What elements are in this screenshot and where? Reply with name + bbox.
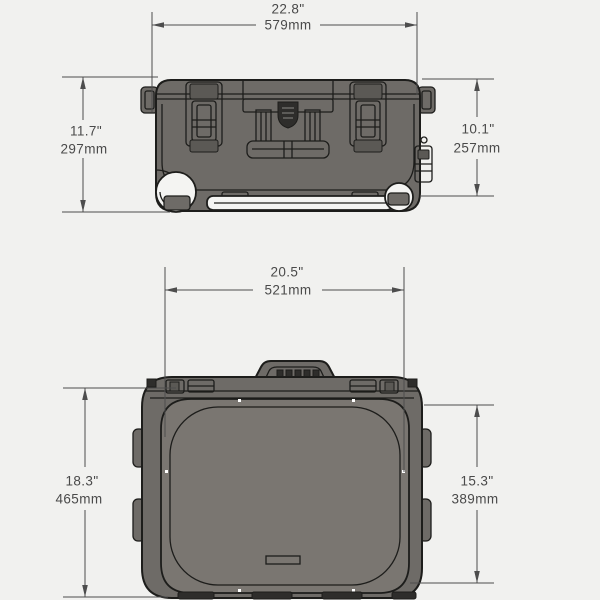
top-view-drawing bbox=[133, 361, 431, 599]
mold-mark bbox=[238, 589, 241, 592]
mold-mark bbox=[165, 470, 168, 473]
top-depth-left-mm: 465mm bbox=[55, 492, 102, 506]
diagram-drawing bbox=[0, 0, 600, 600]
front-width-inches: 22.8" bbox=[271, 2, 304, 16]
front-view-drawing bbox=[141, 80, 435, 212]
wheel-right bbox=[385, 183, 413, 211]
front-height-right-mm: 257mm bbox=[453, 141, 500, 155]
top-width-mm: 521mm bbox=[264, 283, 311, 297]
top-depth-right-inches: 15.3" bbox=[460, 474, 493, 488]
mold-mark bbox=[238, 399, 241, 402]
top-depth-right-mm: 389mm bbox=[451, 492, 498, 506]
brand-emblem-icon bbox=[278, 102, 298, 128]
mold-mark bbox=[352, 399, 355, 402]
front-height-left-inches: 11.7" bbox=[70, 124, 102, 138]
case-dimension-diagram: 22.8" 579mm 11.7" 297mm 10.1" 257mm 20.5… bbox=[0, 0, 600, 600]
top-width-inches: 20.5" bbox=[270, 265, 303, 279]
front-height-right-inches: 10.1" bbox=[461, 122, 494, 136]
front-height-left-mm: 297mm bbox=[60, 142, 107, 156]
top-depth-left-inches: 18.3" bbox=[65, 474, 98, 488]
wheel-left bbox=[156, 172, 196, 212]
front-width-mm: 579mm bbox=[264, 18, 311, 32]
